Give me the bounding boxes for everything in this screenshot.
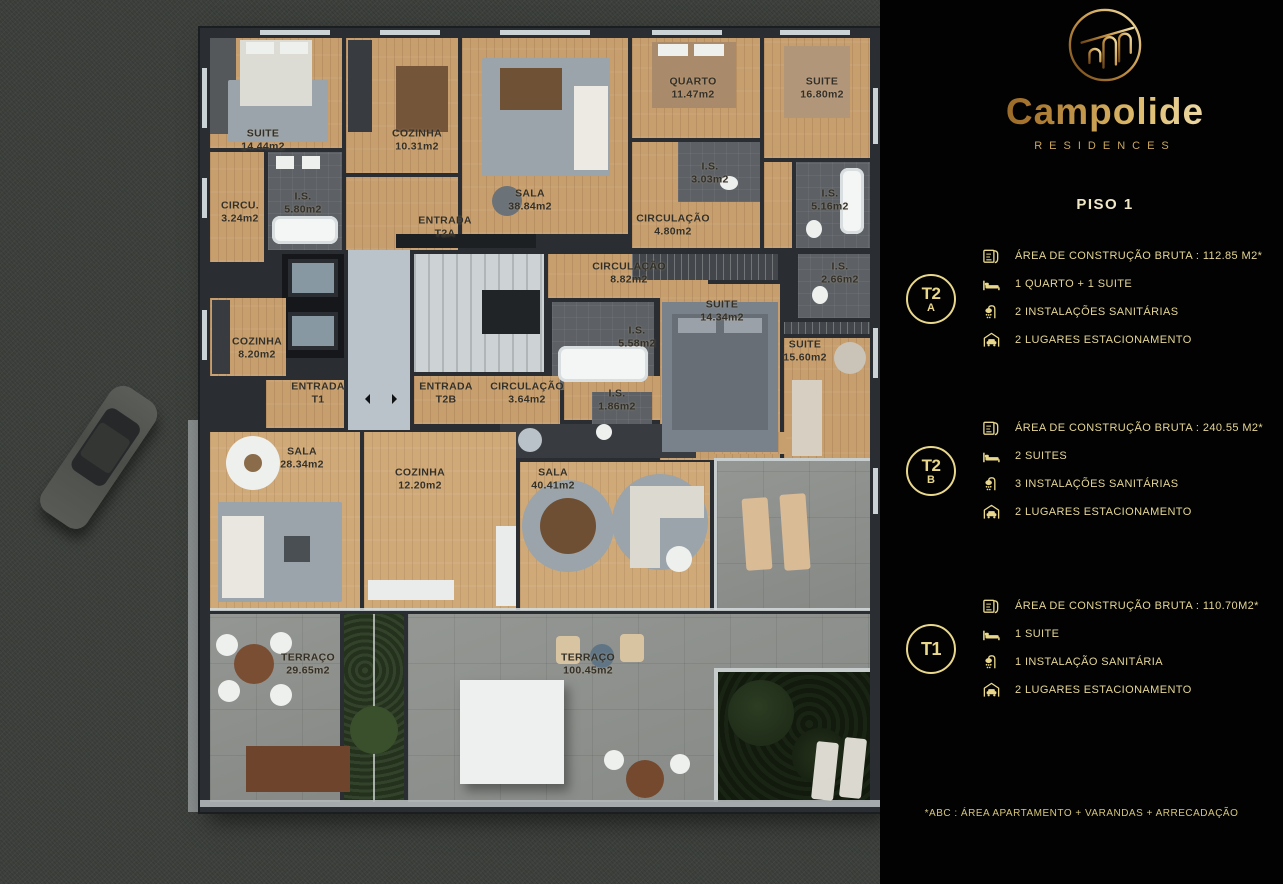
bed-icon bbox=[980, 624, 1002, 644]
unit-badge-t2b: T2B bbox=[906, 446, 956, 496]
pillow bbox=[694, 44, 724, 56]
info-panel: Campolide RESIDENCES PISO 1 T2A ÁREA DE … bbox=[880, 0, 1283, 884]
room-label: COZINHA10.31m2 bbox=[392, 127, 442, 152]
washer bbox=[518, 428, 542, 452]
shower-icon bbox=[980, 652, 1002, 672]
brand-tagline: RESIDENCES bbox=[920, 140, 1283, 152]
terrace-rim bbox=[200, 800, 880, 807]
room-label: CIRCU.3.24m2 bbox=[221, 199, 259, 224]
window bbox=[202, 178, 207, 218]
room-label: I.S.2.66m2 bbox=[821, 260, 858, 285]
room-label: QUARTO11.47m2 bbox=[669, 75, 716, 100]
dining-table bbox=[500, 68, 562, 110]
pillow bbox=[658, 44, 688, 56]
terrace-chair bbox=[218, 680, 240, 702]
window bbox=[873, 328, 878, 378]
spec-row: 3 INSTALAÇÕES SANITÁRIAS bbox=[980, 470, 1263, 498]
stair-landing bbox=[482, 290, 540, 334]
room-label: CIRCULAÇÃO3.64m2 bbox=[490, 380, 564, 405]
sofa bbox=[792, 380, 822, 456]
room-label: SALA38.84m2 bbox=[508, 187, 552, 212]
armchair bbox=[834, 342, 866, 374]
kitchen-counter bbox=[368, 580, 454, 600]
room-label: SUITE14.34m2 bbox=[700, 298, 744, 323]
room-label: CIRCULAÇÃO4.80m2 bbox=[636, 212, 710, 237]
pillow bbox=[280, 42, 308, 54]
brand-block: Campolide RESIDENCES bbox=[920, 0, 1283, 152]
room-label: ENTRADAT2A bbox=[418, 214, 471, 239]
spec-row: 2 SUITES bbox=[980, 442, 1263, 470]
brand-name: Campolide bbox=[920, 91, 1283, 133]
room-label: ENTRADAT2B bbox=[419, 380, 472, 405]
coffee-table bbox=[284, 536, 310, 562]
room-label: SALA28.34m2 bbox=[280, 445, 324, 470]
room-label: I.S.3.03m2 bbox=[691, 160, 728, 185]
floor-title: PISO 1 bbox=[920, 196, 1283, 213]
bathtub bbox=[272, 216, 338, 244]
toilet bbox=[812, 286, 828, 304]
terrace-chair bbox=[216, 634, 238, 656]
entrance-arrow bbox=[360, 394, 370, 404]
palm-plant bbox=[350, 706, 398, 754]
terrace-dining-table bbox=[246, 746, 350, 792]
sofa bbox=[222, 516, 264, 598]
shower-icon bbox=[980, 474, 1002, 494]
spec-row: 1 INSTALAÇÃO SANITÁRIA bbox=[980, 648, 1259, 676]
terrace-chair bbox=[670, 754, 690, 774]
window bbox=[380, 30, 440, 35]
floor-plan: SUITE14.44m2 COZINHA10.31m2 SALA38.84m2 … bbox=[200, 28, 880, 812]
elevator-cab bbox=[288, 259, 338, 297]
sofa bbox=[630, 486, 660, 568]
dining-table bbox=[396, 66, 448, 132]
window bbox=[873, 468, 878, 514]
toilet bbox=[806, 220, 822, 238]
window bbox=[260, 30, 330, 35]
unit-section-t1: T1 ÁREA DE CONSTRUÇÃO BRUTA : 110.70M2* … bbox=[880, 592, 1283, 708]
room-label: COZINHA8.20m2 bbox=[232, 335, 282, 360]
pergola bbox=[460, 680, 564, 784]
aqueduct-logo-icon bbox=[1066, 6, 1144, 84]
bed-icon bbox=[980, 446, 1002, 466]
room-label: SUITE15.60m2 bbox=[783, 338, 827, 363]
coffee-table bbox=[666, 546, 692, 572]
terrace-chair bbox=[620, 634, 644, 662]
room-label: I.S.5.80m2 bbox=[284, 190, 321, 215]
building-edge bbox=[188, 420, 200, 812]
sink bbox=[276, 156, 294, 169]
terrace-chair bbox=[604, 750, 624, 770]
entrance-arrow bbox=[392, 394, 402, 404]
window bbox=[202, 310, 207, 360]
garage-car-icon bbox=[980, 502, 1002, 522]
bed-icon bbox=[980, 274, 1002, 294]
room-label: COZINHA12.20m2 bbox=[395, 466, 445, 491]
unit-section-t2b: T2B ÁREA DE CONSTRUÇÃO BRUTA : 240.55 M2… bbox=[880, 414, 1283, 530]
spec-row: 1 SUITE bbox=[980, 620, 1259, 648]
page: SUITE14.44m2 COZINHA10.31m2 SALA38.84m2 … bbox=[0, 0, 1283, 884]
table-center bbox=[244, 454, 262, 472]
room-label: I.S.5.58m2 bbox=[618, 324, 655, 349]
unit-section-t2a: T2A ÁREA DE CONSTRUÇÃO BRUTA : 112.85 M2… bbox=[880, 242, 1283, 358]
elevator-cab bbox=[288, 312, 338, 350]
room-label: SUITE16.80m2 bbox=[800, 75, 844, 100]
garden-tree bbox=[728, 680, 794, 746]
room-label: SUITE14.44m2 bbox=[241, 127, 285, 152]
window bbox=[202, 68, 207, 128]
blueprint-icon bbox=[980, 418, 1002, 438]
spec-row: 2 LUGARES ESTACIONAMENTO bbox=[980, 676, 1259, 704]
closet-strip bbox=[764, 162, 792, 248]
room-label: I.S.5.16m2 bbox=[811, 187, 848, 212]
spec-row: 2 LUGARES ESTACIONAMENTO bbox=[980, 326, 1262, 354]
window bbox=[873, 88, 878, 144]
spec-row: 2 INSTALAÇÕES SANITÁRIAS bbox=[980, 298, 1262, 326]
shower-icon bbox=[980, 302, 1002, 322]
room-label: ENTRADAT1 bbox=[291, 380, 344, 405]
window bbox=[500, 30, 590, 35]
kitchen-counter bbox=[348, 40, 372, 132]
room-label: TERRAÇO100.45m2 bbox=[561, 651, 615, 676]
pillow bbox=[246, 42, 274, 54]
window bbox=[780, 30, 850, 35]
room-label: I.S.1.86m2 bbox=[598, 387, 635, 412]
sun-lounger bbox=[779, 493, 810, 571]
terrace-table bbox=[626, 760, 664, 798]
sun-lounger bbox=[742, 497, 773, 571]
blueprint-icon bbox=[980, 246, 1002, 266]
garage-car-icon bbox=[980, 680, 1002, 700]
sink bbox=[302, 156, 320, 169]
elevator-shafts bbox=[282, 254, 344, 358]
sofa bbox=[574, 86, 608, 170]
room-label: TERRAÇO29.65m2 bbox=[281, 651, 335, 676]
unit-badge-t1: T1 bbox=[906, 624, 956, 674]
window bbox=[652, 30, 722, 35]
glass-facade-line bbox=[210, 608, 870, 611]
room-label: CIRCULAÇÃO8.82m2 bbox=[592, 260, 666, 285]
blueprint-icon bbox=[980, 596, 1002, 616]
spec-row: ÁREA DE CONSTRUÇÃO BRUTA : 240.55 M2* bbox=[980, 414, 1263, 442]
spec-row: 2 LUGARES ESTACIONAMENTO bbox=[980, 498, 1263, 526]
round-dining-table bbox=[540, 498, 596, 554]
kitchen-counter bbox=[496, 526, 516, 606]
footnote: *ABC : ÁREA APARTAMENTO + VARANDAS + ARR… bbox=[880, 808, 1283, 819]
wardrobe-strip bbox=[784, 322, 870, 334]
toilet bbox=[596, 424, 612, 440]
unit-badge-t2a: T2A bbox=[906, 274, 956, 324]
garage-car-icon bbox=[980, 330, 1002, 350]
terrace-chair bbox=[270, 684, 292, 706]
kitchen-counter bbox=[212, 300, 230, 374]
spec-row: 1 QUARTO + 1 SUITE bbox=[980, 270, 1262, 298]
spec-row: ÁREA DE CONSTRUÇÃO BRUTA : 110.70M2* bbox=[980, 592, 1259, 620]
terrace-table bbox=[234, 644, 274, 684]
bathtub bbox=[558, 346, 648, 382]
spec-row: ÁREA DE CONSTRUÇÃO BRUTA : 112.85 M2* bbox=[980, 242, 1262, 270]
room-label: SALA40.41m2 bbox=[531, 466, 575, 491]
